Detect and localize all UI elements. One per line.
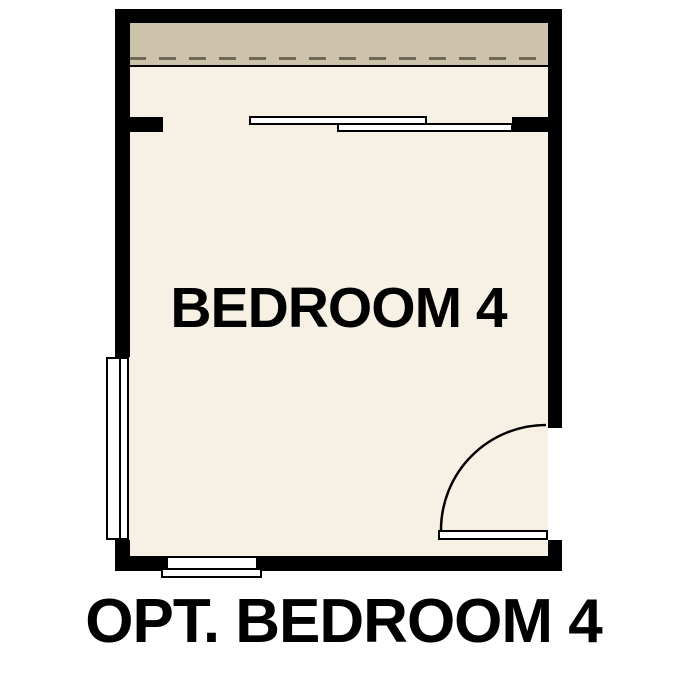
wall-stub-opening-right — [512, 117, 548, 132]
overhead-dashed-line-icon — [129, 57, 548, 60]
window-mullion-line — [119, 359, 121, 538]
wall-top — [115, 9, 562, 23]
floor-plan-canvas: BEDROOM 4 OPT. BEDROOM 4 — [0, 0, 687, 687]
window-sill-icon — [161, 568, 262, 578]
sliding-panel-icon-back — [337, 123, 513, 132]
plan-caption: OPT. BEDROOM 4 — [0, 591, 687, 661]
room-label: BEDROOM 4 — [115, 280, 562, 340]
door-leaf-icon — [438, 530, 548, 540]
shaded-zone-edge-line — [129, 65, 548, 67]
top-shaded-zone — [129, 23, 548, 67]
wall-right-upper — [548, 9, 562, 428]
wall-stub-opening-left — [130, 117, 163, 132]
window-left-icon — [106, 357, 129, 540]
